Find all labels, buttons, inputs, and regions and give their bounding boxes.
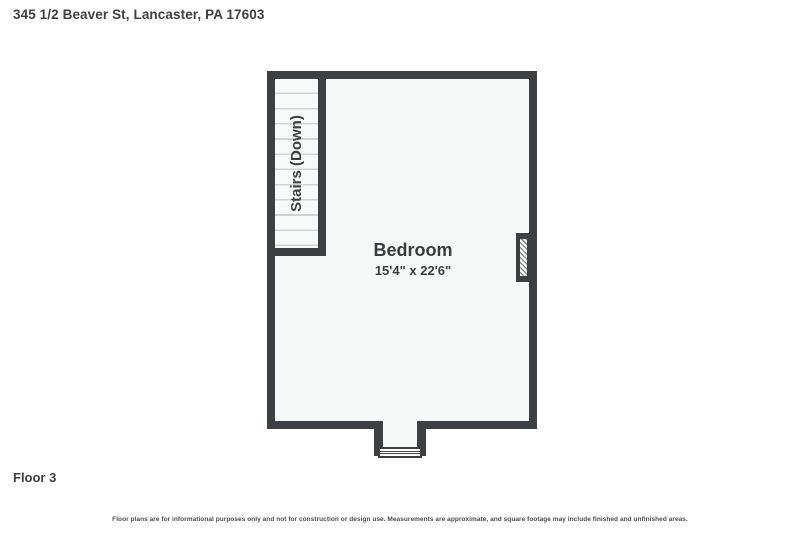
property-address: 345 1/2 Beaver St, Lancaster, PA 17603 (13, 7, 264, 22)
chimney-symbol (516, 233, 530, 282)
room-name: Bedroom (330, 241, 496, 261)
disclaimer-text: Floor plans are for informational purpos… (0, 516, 800, 523)
stair-shaft: Stairs (Down) (275, 79, 326, 256)
chimney-hatch-icon (520, 239, 527, 276)
stairs-label: Stairs (Down) (288, 115, 305, 212)
window-symbol (378, 447, 422, 458)
room-dimensions: 15'4" x 22'6" (330, 263, 496, 278)
floor-plan-page: 345 1/2 Beaver St, Lancaster, PA 17603 S… (0, 0, 800, 533)
room-label: Bedroom 15'4" x 22'6" (330, 241, 496, 278)
floor-level-label: Floor 3 (13, 470, 56, 485)
entry-bumpout-opening (383, 419, 417, 448)
